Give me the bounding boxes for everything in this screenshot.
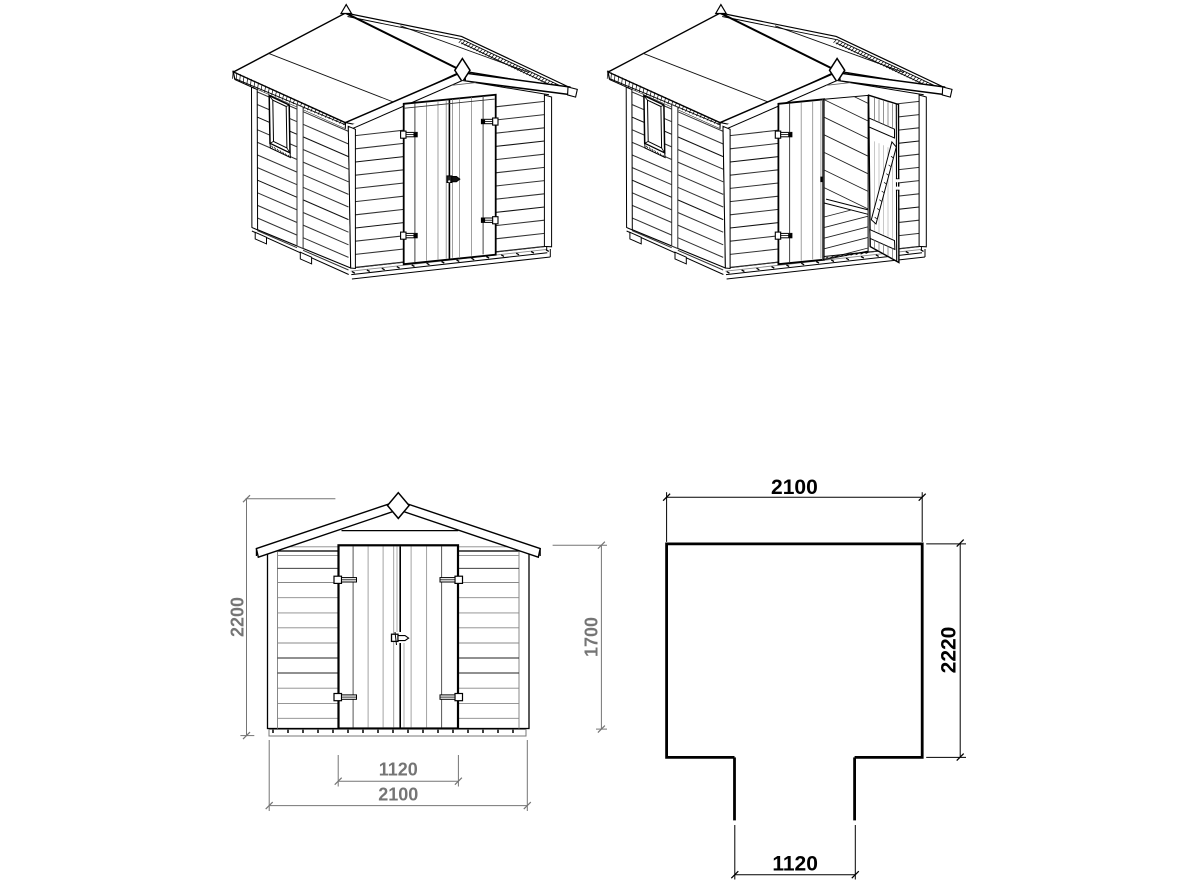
- svg-text:2220: 2220: [938, 627, 961, 674]
- svg-text:1700: 1700: [582, 617, 602, 657]
- svg-text:1120: 1120: [379, 760, 418, 780]
- svg-text:1120: 1120: [772, 853, 818, 876]
- svg-text:2100: 2100: [378, 785, 418, 805]
- svg-text:2200: 2200: [228, 597, 248, 637]
- svg-text:2100: 2100: [771, 476, 818, 499]
